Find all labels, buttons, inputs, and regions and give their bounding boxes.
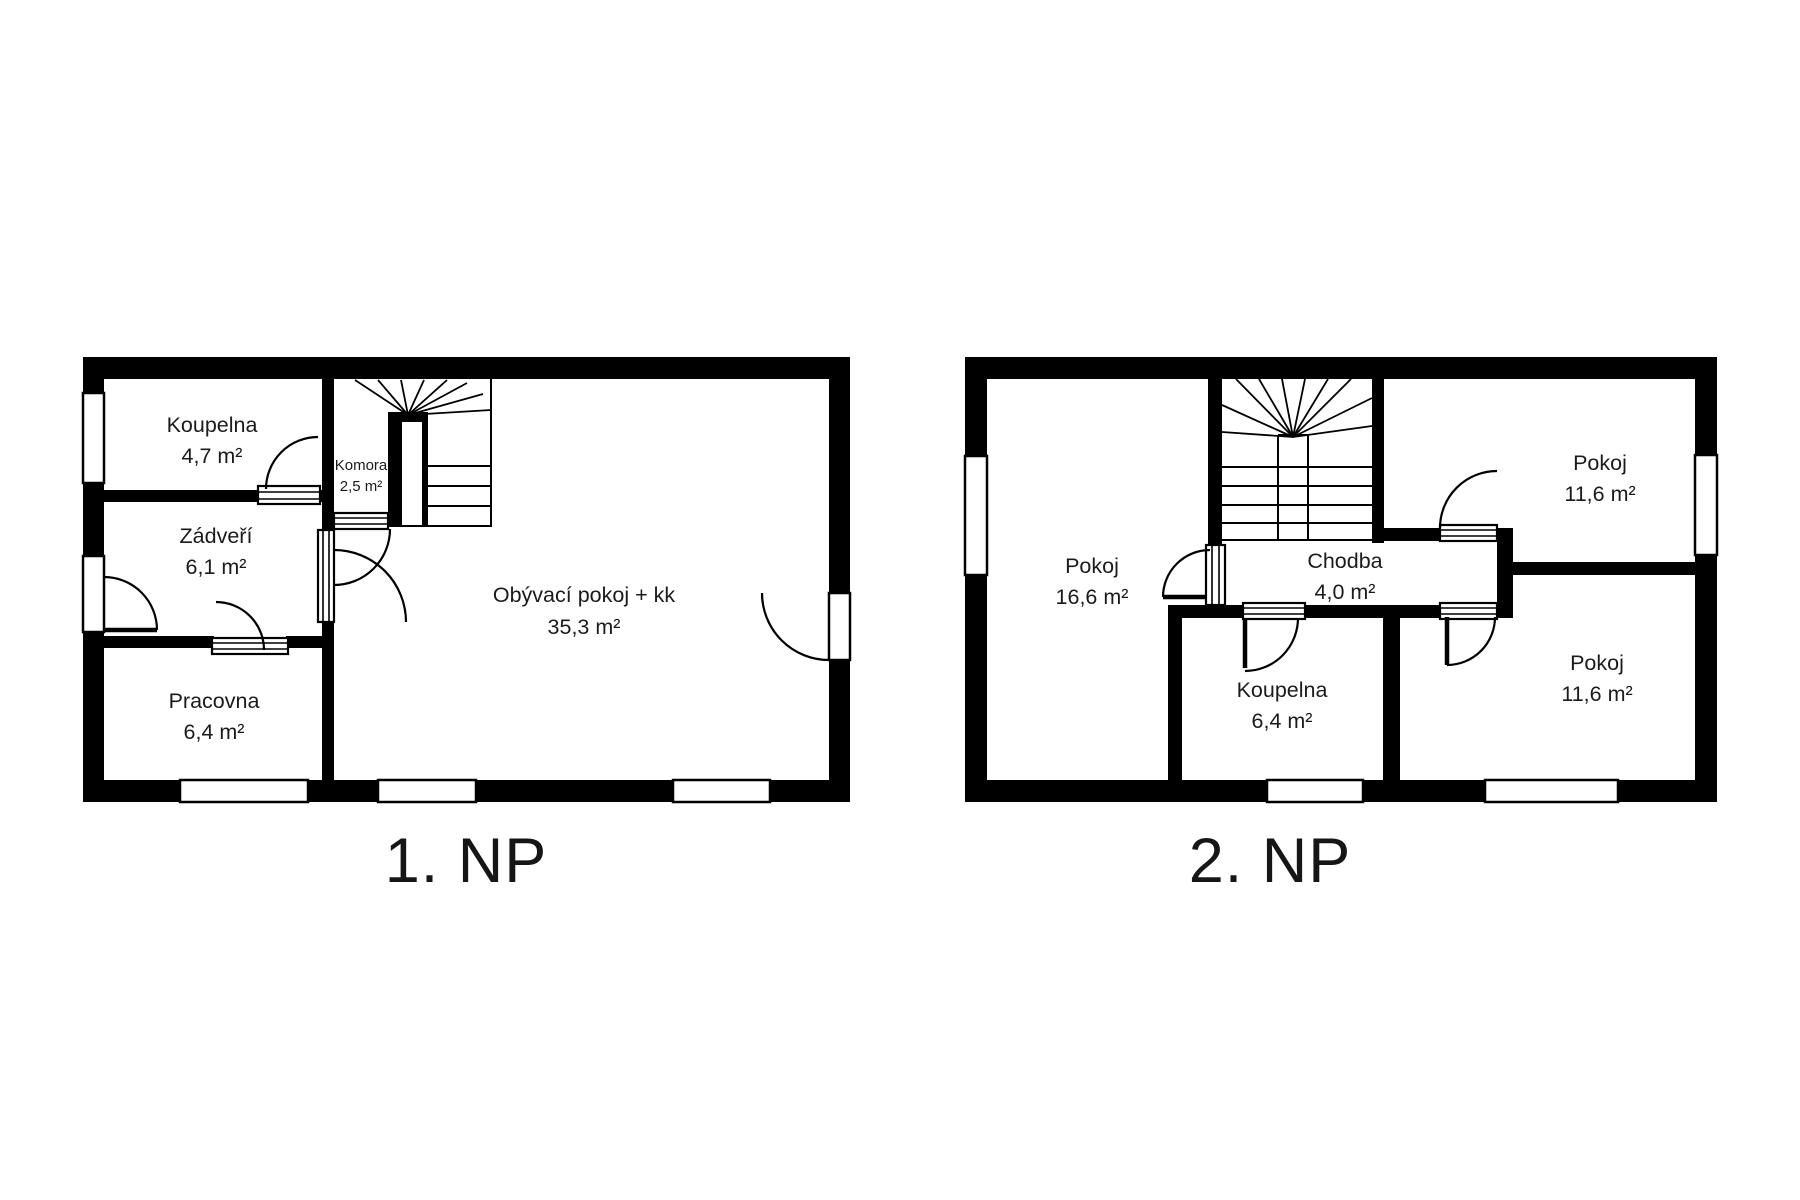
wall-segment xyxy=(1168,605,1245,618)
door-swing-arc xyxy=(266,437,318,489)
room-name-label: Komora xyxy=(335,457,388,474)
floor-1-interior-walls xyxy=(104,379,428,780)
wall-segment xyxy=(322,379,334,530)
stair-newel-wall xyxy=(388,412,402,527)
room-area-label: 6,1 m² xyxy=(186,555,247,579)
floor-title: 2. NP xyxy=(1189,826,1352,896)
floor-2-stairs xyxy=(1222,379,1372,540)
wall-segment xyxy=(322,622,334,780)
room-area-label: 4,7 m² xyxy=(182,444,243,468)
wall-segment xyxy=(1695,357,1717,802)
room-area-label: 6,4 m² xyxy=(184,720,245,744)
wall-segment xyxy=(1383,618,1400,780)
wall-segment xyxy=(829,357,850,802)
door-swing-arc xyxy=(334,529,390,585)
floor-2-interior-walls xyxy=(1168,379,1697,780)
room-name-label: Koupelna xyxy=(167,413,258,437)
wall-segment xyxy=(1372,528,1440,541)
room-area-label: 11,6 m² xyxy=(1564,482,1635,506)
wall-segment xyxy=(1513,562,1697,575)
wall-segment xyxy=(1208,379,1222,545)
door-leaf xyxy=(1243,603,1305,619)
room-area-label: 35,3 m² xyxy=(548,615,621,639)
room-area-label: 4,0 m² xyxy=(1315,580,1376,604)
door-leaf xyxy=(258,486,320,504)
wall-segment xyxy=(965,357,987,802)
room-name-label: Zádveří xyxy=(180,524,253,548)
door-swing-arc xyxy=(334,550,406,622)
wall-segment xyxy=(83,357,850,379)
door-leaf xyxy=(1440,603,1497,619)
room-area-label: 11,6 m² xyxy=(1561,682,1632,706)
room-name-label: Koupelna xyxy=(1237,678,1328,702)
room-name-label: Pokoj xyxy=(1573,451,1627,475)
door-swing-arc xyxy=(1447,617,1495,665)
stair-newel-wall xyxy=(422,412,428,527)
room-name-label: Obývací pokoj + kk xyxy=(493,583,675,607)
wall-segment xyxy=(1372,379,1384,543)
room-name-label: Pokoj xyxy=(1065,554,1119,578)
floor-2-windows xyxy=(965,455,1717,802)
window xyxy=(180,780,308,802)
window xyxy=(1485,780,1618,802)
door-leaf xyxy=(1440,525,1497,541)
floor-1-plan: Koupelna 4,7 m² Zádveří 6,1 m² Pracovna … xyxy=(83,357,850,896)
floor-2-plan: Pokoj 16,6 m² Chodba 4,0 m² Koupelna 6,4… xyxy=(965,357,1717,896)
window xyxy=(965,456,987,575)
door-swing-arc xyxy=(1163,550,1210,597)
wall-segment xyxy=(1168,605,1182,780)
floor-1-doors xyxy=(104,437,829,660)
wall-segment xyxy=(286,636,322,648)
room-area-label: 2,5 m² xyxy=(340,478,383,495)
door-swing-arc xyxy=(104,577,157,630)
door-swing-arc xyxy=(1245,618,1298,671)
room-name-label: Chodba xyxy=(1307,549,1382,573)
wall-segment xyxy=(104,636,214,648)
entrance-door-opening xyxy=(83,556,104,632)
door-leaf xyxy=(212,638,288,654)
window xyxy=(83,393,104,483)
terrace-door-opening xyxy=(829,593,850,660)
floor-title: 1. NP xyxy=(385,826,548,896)
door-swing-arc xyxy=(1440,471,1497,528)
room-name-label: Pracovna xyxy=(169,689,260,713)
room-area-label: 16,6 m² xyxy=(1056,585,1129,609)
wall-segment xyxy=(1497,528,1513,618)
window xyxy=(1267,780,1363,802)
floor-plan-drawing: Koupelna 4,7 m² Zádveří 6,1 m² Pracovna … xyxy=(0,0,1800,1200)
floor-plan-page: Koupelna 4,7 m² Zádveří 6,1 m² Pracovna … xyxy=(0,0,1800,1200)
window xyxy=(673,780,770,802)
window xyxy=(378,780,476,802)
window xyxy=(1695,455,1717,555)
wall-segment xyxy=(965,357,1717,379)
door-leaf xyxy=(334,513,388,529)
floor-2-room-labels: Pokoj 16,6 m² Chodba 4,0 m² Koupelna 6,4… xyxy=(1056,451,1636,733)
wall-segment xyxy=(104,490,260,502)
floor-1-room-labels: Koupelna 4,7 m² Zádveří 6,1 m² Pracovna … xyxy=(167,413,676,744)
door-swing-arc xyxy=(762,593,829,660)
wall-segment xyxy=(1303,605,1447,618)
room-area-label: 6,4 m² xyxy=(1252,709,1313,733)
door-leaf xyxy=(1206,545,1225,605)
door-leaf xyxy=(318,530,334,622)
room-name-label: Pokoj xyxy=(1570,651,1624,675)
